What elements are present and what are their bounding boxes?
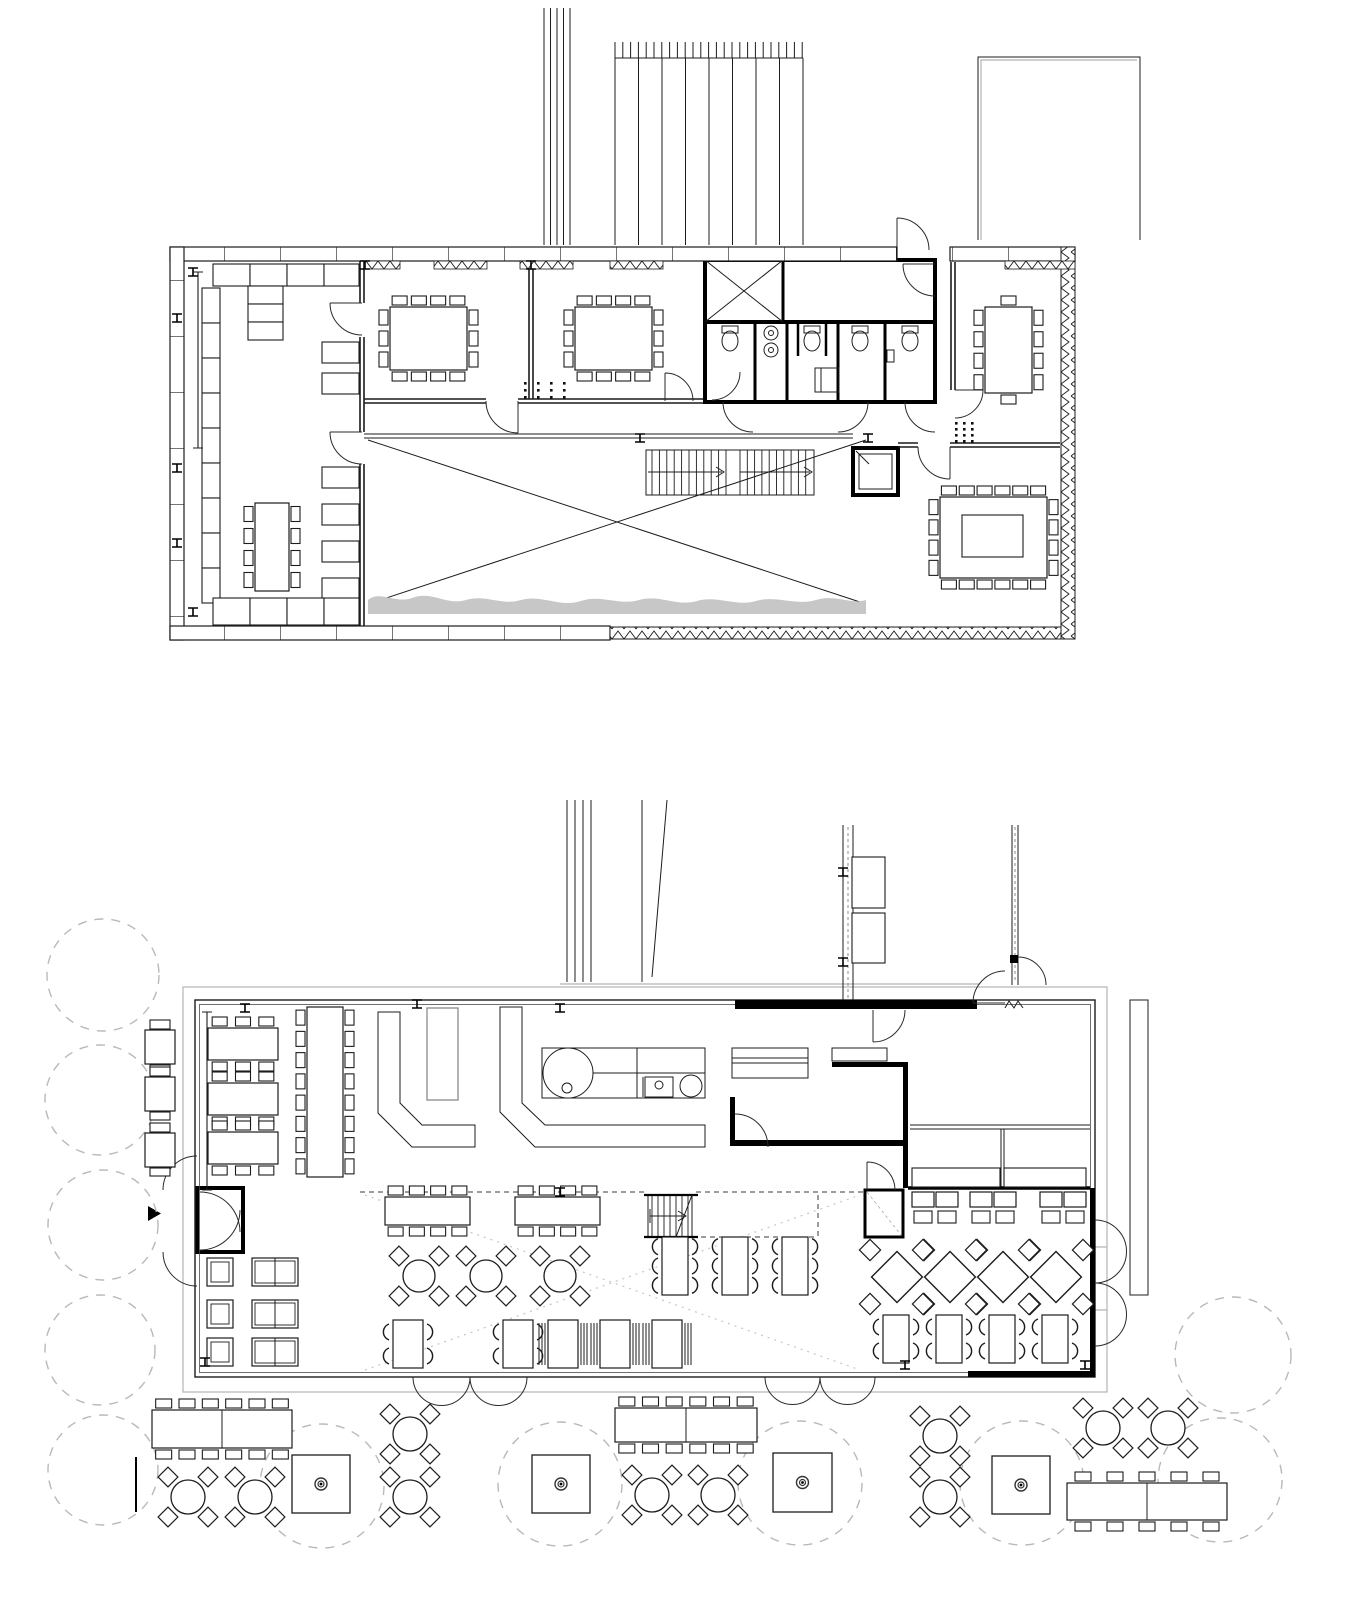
column-symbol (188, 608, 198, 616)
terrace-long-table (152, 1399, 292, 1459)
dining-table (493, 1320, 542, 1368)
dining-table (974, 296, 1043, 404)
round-table (622, 1465, 682, 1525)
garden-wall (1130, 1000, 1148, 1295)
terrace-long-table (615, 1397, 757, 1453)
shelf-unit (912, 1168, 1000, 1187)
change-table (815, 368, 839, 392)
tree-canopy (45, 1295, 155, 1405)
kitchen-area (378, 1007, 887, 1147)
dining-table (979, 1315, 1024, 1363)
tree-planter (532, 1455, 590, 1513)
round-table (910, 1406, 970, 1466)
shelf-unit (324, 598, 359, 625)
terrace-table (145, 1067, 175, 1120)
tree-canopy (48, 1415, 158, 1525)
shelf-unit (248, 322, 283, 340)
side-vestibule (865, 1162, 903, 1237)
dining-table (208, 1121, 278, 1175)
shelf-unit (287, 264, 324, 286)
shelf-unit (202, 463, 220, 498)
shelf-unit (202, 358, 220, 393)
armchair (207, 1258, 233, 1286)
shelf-unit (322, 342, 359, 363)
shelf-unit (202, 323, 220, 358)
stair-lower (644, 1195, 698, 1237)
terrace-table (145, 1123, 175, 1176)
dining-table (383, 1320, 432, 1368)
shelf-unit (852, 913, 885, 963)
pass-counter (832, 1048, 887, 1061)
dining-table (929, 486, 1058, 589)
round-table (1073, 1398, 1133, 1458)
wc-block (705, 260, 935, 402)
window-strip (520, 261, 573, 269)
dot-grid (524, 382, 566, 399)
column-symbol (838, 868, 848, 876)
counter-island (427, 1008, 458, 1100)
round-table (1138, 1398, 1198, 1458)
round-table (380, 1404, 440, 1464)
ground-floor-plan (45, 800, 1291, 1548)
tree-canopy (1175, 1297, 1291, 1413)
dining-table (926, 1315, 971, 1363)
dining-table (515, 1186, 600, 1236)
elevator (853, 448, 898, 495)
round-table (225, 1467, 285, 1527)
sofa (252, 1338, 298, 1366)
tree-canopy (48, 1170, 158, 1280)
column-symbol (838, 958, 848, 966)
shelf-unit (213, 264, 250, 286)
shelf-unit (852, 857, 885, 908)
window-strip (364, 261, 400, 269)
tree-canopy (47, 919, 159, 1031)
tree-canopy (45, 1045, 155, 1155)
shelf-unit (1004, 1168, 1086, 1187)
column-symbol (412, 1000, 422, 1008)
bench-table (539, 1320, 587, 1368)
shelf-unit (202, 288, 220, 323)
banquette-table (912, 1192, 934, 1223)
dot-grid (955, 422, 974, 443)
dining-table (296, 1007, 354, 1177)
armchair (207, 1338, 233, 1366)
round-table (688, 1465, 748, 1525)
upper-floor-plan (170, 8, 1140, 640)
shelf-unit (202, 428, 220, 463)
path-lines (567, 800, 667, 982)
dining-table (208, 1017, 278, 1071)
window-strip (434, 261, 487, 269)
square-table-rotated (1018, 1239, 1093, 1314)
site-lines-above (544, 8, 1140, 245)
tree-planter (292, 1455, 350, 1513)
bench-table (643, 1320, 691, 1368)
banquette-table (1040, 1192, 1062, 1223)
shelf-unit (324, 264, 359, 286)
banquette-table (994, 1192, 1016, 1223)
banquette-table (970, 1192, 992, 1223)
dining-table (1032, 1315, 1077, 1363)
window-strip (610, 261, 663, 269)
dining-table (379, 296, 478, 381)
bench-table (591, 1320, 639, 1368)
dining-table (564, 296, 663, 381)
round-table (389, 1246, 449, 1306)
shaft-cross (705, 260, 783, 322)
shelf-unit (250, 598, 287, 625)
planting-strip (368, 596, 866, 614)
tree-planter (773, 1453, 832, 1512)
banquette-table (936, 1192, 958, 1223)
shelf-unit (322, 578, 359, 599)
entrance-arrow-icon (148, 1206, 161, 1221)
shelf-unit (322, 373, 359, 394)
dining-table (208, 1072, 278, 1126)
banquette-table (1064, 1192, 1086, 1223)
tree-planter (992, 1456, 1050, 1514)
shelf-unit (202, 533, 220, 568)
round-table (158, 1467, 218, 1527)
dining-table (385, 1186, 470, 1236)
round-table (530, 1246, 590, 1306)
shelf-unit (322, 541, 359, 562)
round-table (456, 1246, 516, 1306)
dining-table (873, 1315, 918, 1363)
shelf-unit (202, 393, 220, 428)
drawing-sheet: Architectural drawing — two floor plans:… (0, 0, 1350, 1610)
column-symbol (555, 1004, 565, 1012)
wc-fixtures (722, 324, 918, 392)
dining-table (244, 503, 300, 591)
shelf-unit (250, 264, 287, 286)
dining-table (712, 1237, 757, 1295)
shelf-unit (322, 504, 359, 525)
round-table (380, 1467, 440, 1527)
shelf-unit (202, 498, 220, 533)
furniture-lower (45, 857, 1291, 1548)
shelf-unit (248, 304, 283, 322)
shelf-unit (213, 598, 250, 625)
sofa (252, 1258, 298, 1286)
column-symbol (240, 1004, 250, 1012)
dining-table (772, 1237, 817, 1295)
facade-upper (170, 247, 1075, 640)
shelf-unit (322, 467, 359, 488)
shelf-unit (287, 598, 324, 625)
round-table (910, 1467, 970, 1527)
serving-counter (500, 1007, 705, 1147)
terrace-table (145, 1020, 175, 1073)
armchair (207, 1300, 233, 1328)
shelf-unit (248, 286, 283, 304)
dining-table (652, 1237, 697, 1295)
sofa (252, 1300, 298, 1328)
column-symbol (1080, 1361, 1090, 1369)
window-strip (1005, 261, 1075, 269)
furniture-upper (172, 261, 1058, 625)
terrace-long-table (1067, 1472, 1227, 1531)
floor-plan-canvas (0, 0, 1350, 1610)
stair-upper (646, 450, 814, 495)
